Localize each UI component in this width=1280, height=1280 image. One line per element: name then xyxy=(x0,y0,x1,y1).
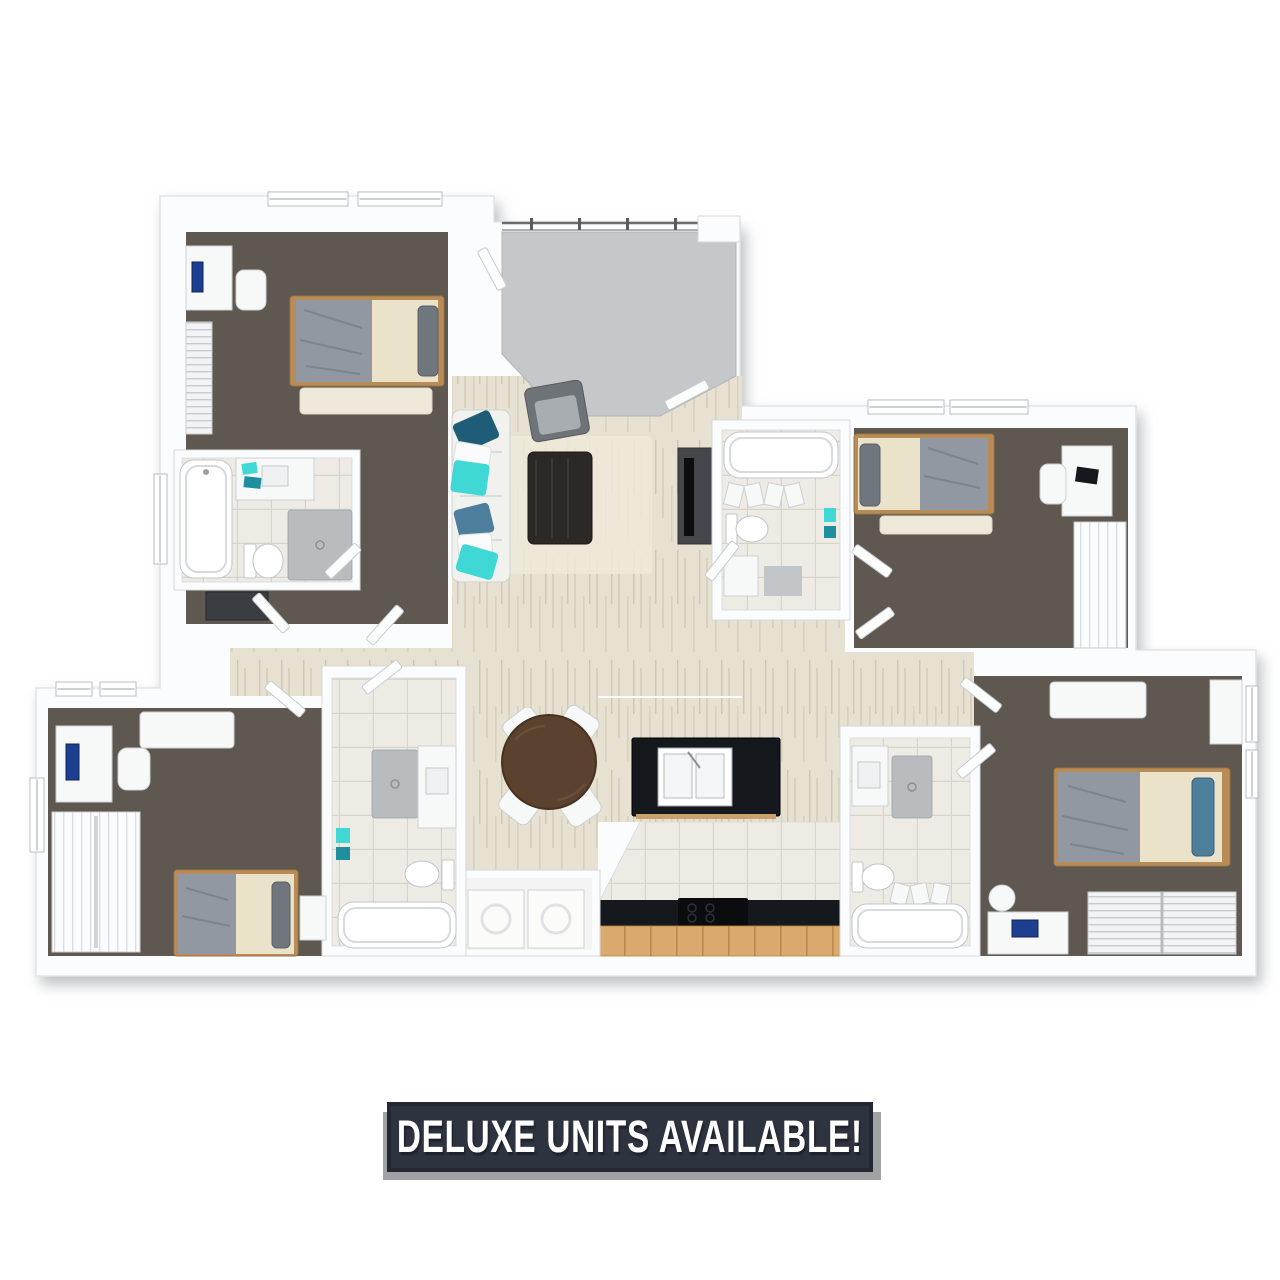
teal-towel xyxy=(241,462,257,475)
floor-plan-image xyxy=(0,0,1280,1280)
pillow xyxy=(272,882,290,948)
kitchen-island xyxy=(632,738,780,819)
desk-monitor xyxy=(66,744,79,780)
promo-banner-label: DELUXE UNITS AVAILABLE! xyxy=(397,1111,863,1163)
bed xyxy=(290,296,444,386)
desk-chair xyxy=(236,270,266,310)
cabinets xyxy=(598,926,842,956)
closet xyxy=(52,812,140,952)
closet xyxy=(186,322,212,434)
desk-monitor xyxy=(192,262,203,292)
pillow xyxy=(418,306,438,376)
rug xyxy=(300,388,432,414)
dresser xyxy=(1050,682,1146,718)
bed xyxy=(1054,768,1230,866)
window xyxy=(100,682,136,696)
bed xyxy=(174,870,298,956)
window xyxy=(268,192,348,206)
sink-vanity xyxy=(852,746,888,806)
bathtub xyxy=(852,904,968,948)
teal-towel xyxy=(336,847,350,860)
sink-vanity xyxy=(418,746,456,828)
pillow xyxy=(450,460,490,497)
bathtub xyxy=(180,460,232,578)
window xyxy=(358,192,442,206)
window xyxy=(30,778,44,852)
toilet xyxy=(726,514,768,544)
window xyxy=(1246,750,1258,798)
toilet xyxy=(244,544,283,578)
dresser xyxy=(140,712,234,748)
tv-stand xyxy=(678,448,716,544)
window xyxy=(154,474,167,564)
towel-rack xyxy=(890,882,950,905)
pillow xyxy=(860,444,880,506)
entry-pillar xyxy=(698,216,740,242)
bathroom-center-top xyxy=(712,420,850,620)
nightstand xyxy=(1210,680,1242,744)
hallway-floor xyxy=(230,648,742,696)
promo-banner: DELUXE UNITS AVAILABLE! xyxy=(387,1102,873,1172)
tv xyxy=(684,458,694,536)
shower xyxy=(372,750,418,818)
armchair xyxy=(524,379,590,442)
toilet xyxy=(852,862,894,892)
window xyxy=(56,682,92,696)
hall-bedroom4-floor xyxy=(845,652,974,730)
teal-towel xyxy=(243,476,261,489)
bathroom-bottom-left xyxy=(322,666,466,956)
desk-chair xyxy=(989,885,1015,911)
shower xyxy=(892,756,932,818)
bathtub xyxy=(724,432,838,478)
washer xyxy=(468,890,524,948)
desk-chair xyxy=(118,748,150,790)
stove xyxy=(678,898,748,926)
dining-table xyxy=(502,715,596,809)
sink xyxy=(724,556,758,596)
kitchen-counter xyxy=(598,898,842,956)
pillow xyxy=(1192,778,1214,856)
bathroom-bottom-right xyxy=(840,726,980,956)
laundry-closet xyxy=(456,870,600,956)
kitchen-sink xyxy=(658,748,732,806)
bed xyxy=(854,434,994,514)
window xyxy=(950,400,1028,414)
closet xyxy=(1074,522,1126,648)
teal-towel xyxy=(824,508,836,522)
teal-towel xyxy=(336,828,350,843)
teal-towel xyxy=(824,526,836,538)
sofa xyxy=(450,409,510,582)
window xyxy=(868,400,944,414)
desk xyxy=(56,726,112,802)
bath-mat xyxy=(764,566,802,596)
closet xyxy=(1088,892,1236,954)
window xyxy=(1246,686,1258,742)
shower xyxy=(288,510,352,580)
rug xyxy=(880,516,992,534)
laptop xyxy=(1075,467,1099,485)
desk-chair xyxy=(1040,464,1066,504)
coffee-table xyxy=(528,452,592,544)
sink-vanity xyxy=(236,458,314,500)
dryer xyxy=(528,890,584,948)
bathtub xyxy=(338,902,456,948)
nightstand xyxy=(300,896,326,940)
desk-monitor xyxy=(1012,920,1038,937)
